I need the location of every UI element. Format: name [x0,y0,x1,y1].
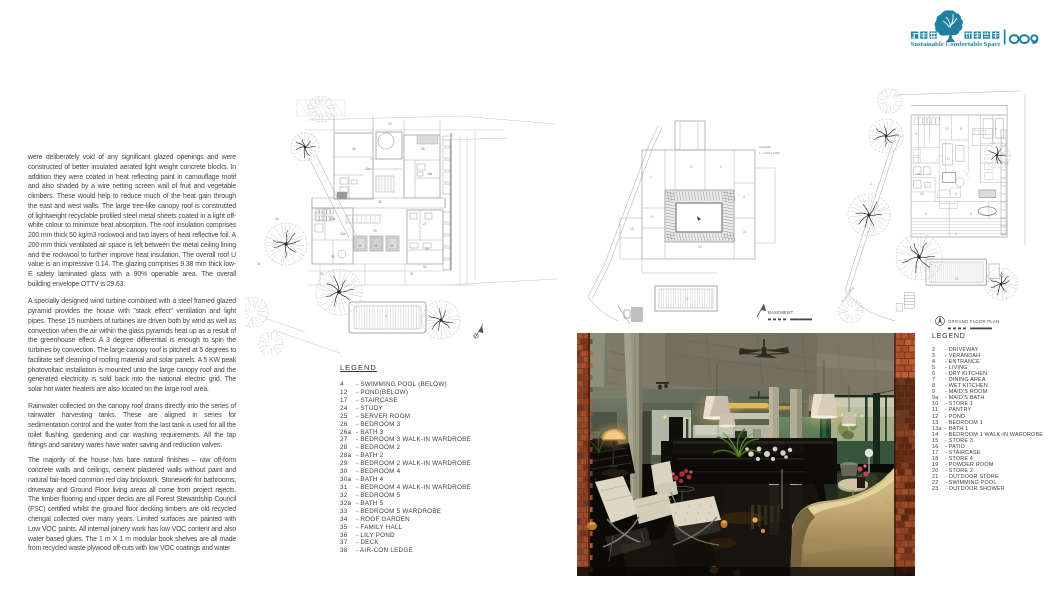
svg-text:29: 29 [373,229,377,233]
svg-text:26: 26 [352,147,356,151]
svg-text:17: 17 [947,157,951,161]
svg-text:37: 37 [410,272,414,276]
svg-text:35: 35 [374,244,378,248]
svg-text:4: 4 [743,195,745,199]
svg-text:13: 13 [388,122,392,126]
svg-text:10: 10 [945,127,949,131]
svg-text:3: 3 [925,212,927,216]
svg-text:22: 22 [685,297,689,301]
svg-text:17: 17 [690,165,694,169]
svg-text:LEGEND: LEGEND [759,145,772,149]
svg-text:8: 8 [960,127,962,131]
svg-text:1: 1 [650,175,652,179]
svg-text:36: 36 [358,244,362,248]
svg-text:PLAN VIEW: PLAN VIEW [841,286,856,304]
svg-text:34: 34 [275,217,279,221]
svg-text:28: 28 [421,147,425,151]
svg-text:2: 2 [870,182,872,186]
svg-text:15: 15 [630,227,634,231]
svg-text:22: 22 [743,230,747,234]
svg-text:34: 34 [257,262,261,266]
svg-text:3: 3 [970,212,972,216]
svg-text:27: 27 [423,222,427,226]
svg-text:22: 22 [955,277,959,281]
svg-text:6: 6 [995,127,997,131]
svg-text:BASEMENT: BASEMENT [768,310,794,315]
svg-text:36: 36 [390,244,394,248]
svg-text:35: 35 [378,200,382,204]
svg-text:24: 24 [425,247,429,251]
svg-text:1: 1 [720,165,722,169]
svg-text:30a: 30a [340,232,346,236]
svg-text:4: 4 [385,314,387,318]
svg-text:28a: 28a [427,172,433,176]
svg-text:12: 12 [698,245,702,249]
svg-text:7: 7 [1007,162,1009,166]
svg-text:2: 2 [955,232,957,236]
svg-text:10: 10 [650,215,654,219]
svg-text:30a: 30a [330,217,336,221]
svg-text:32: 32 [331,255,335,259]
svg-text:30: 30 [423,265,427,269]
svg-text:Sustainable Comfortable Space: Sustainable Comfortable Space [911,41,1001,48]
svg-text:13: 13 [920,192,924,196]
svg-text:GROUND FLOOR PLAN: GROUND FLOOR PLAN [948,319,999,324]
svg-text:1 - LIGHT PIPE: 1 - LIGHT PIPE [759,151,780,155]
svg-text:37: 37 [320,272,324,276]
svg-text:9: 9 [915,132,917,136]
svg-text:5: 5 [955,192,957,196]
svg-text:23: 23 [1000,274,1004,278]
svg-text:26a: 26a [365,167,371,171]
svg-text:9a: 9a [917,172,921,176]
